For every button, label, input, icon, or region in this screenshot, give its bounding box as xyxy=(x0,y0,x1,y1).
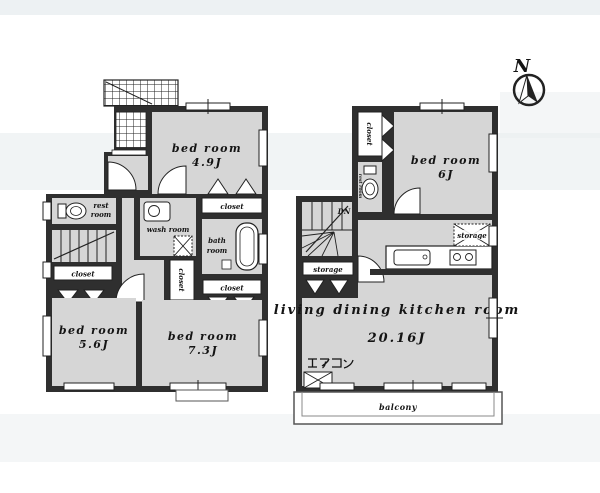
room-washroom: wash room xyxy=(140,198,196,256)
kitchen-counter xyxy=(370,246,492,275)
washing-machine-icon xyxy=(174,236,192,256)
bedroom-73-name: bed room xyxy=(168,330,238,343)
svg-text:closet: closet xyxy=(365,122,374,146)
svg-text:closet: closet xyxy=(220,284,244,293)
room-bedroom-6: bed room 6J xyxy=(394,112,492,214)
room-restroom-f2: rest room xyxy=(357,162,382,212)
restroom-label-1: rest xyxy=(93,201,109,210)
svg-text:storage: storage xyxy=(457,231,487,240)
ldk-name: living dining kitchen room xyxy=(274,303,520,318)
ldk-size: 20.16J xyxy=(367,331,427,346)
balcony: balcony xyxy=(294,392,502,424)
bedroom-6-size: 6J xyxy=(438,168,454,181)
bathroom-label-1: bath xyxy=(208,236,226,245)
stove-icon xyxy=(450,250,476,265)
bedroom-49-name: bed room xyxy=(172,142,242,155)
room-restroom-f1: rest room xyxy=(52,198,116,224)
bedroom-6-name: bed room xyxy=(411,154,481,167)
svg-text:storage: storage xyxy=(313,265,343,274)
bedroom-73-size: 7.3J xyxy=(188,344,218,357)
room-bedroom-5-6: bed room 5.6J xyxy=(52,298,136,386)
toilet-icon xyxy=(58,203,86,219)
restroom-f2-label: rest room xyxy=(357,174,363,199)
kitchen-sink-icon xyxy=(394,250,430,265)
counter-front-wall xyxy=(370,269,492,275)
entrance-tiles xyxy=(116,112,146,148)
bedroom-49-size: 4.9J xyxy=(192,156,222,169)
restroom-label-2: room xyxy=(91,210,111,219)
closet-bedroom49: closet xyxy=(202,198,262,213)
toilet-icon xyxy=(362,166,378,199)
room-bedroom-7-3: bed room 7.3J xyxy=(142,300,262,386)
room-bedroom-4-9: bed room 4.9J xyxy=(152,112,262,194)
washroom-label: wash room xyxy=(147,225,189,234)
stairs-dn-label: DN xyxy=(337,207,351,216)
room-bathroom: bath room xyxy=(202,219,262,274)
bath-faucet-icon xyxy=(222,260,231,269)
stairs-down: DN xyxy=(302,202,352,256)
sink-icon xyxy=(144,202,170,221)
bathtub-icon xyxy=(236,223,258,270)
svg-text:closet: closet xyxy=(177,268,186,292)
terrace-step xyxy=(176,390,228,401)
porch-hatch xyxy=(104,80,178,106)
entrance-step xyxy=(112,150,146,155)
svg-text:closet: closet xyxy=(220,202,244,211)
floorplan-page: bed room 4.9J rest room UP xyxy=(0,0,600,493)
closet-hall-mid: closet xyxy=(170,260,194,300)
bedroom-56-size: 5.6J xyxy=(79,338,109,351)
svg-text:closet: closet xyxy=(71,270,95,279)
balcony-label: balcony xyxy=(379,402,418,412)
bedroom-56-name: bed room xyxy=(59,324,129,337)
storage-kitchen: storage xyxy=(454,224,490,246)
bathroom-label-2: room xyxy=(207,246,227,255)
floor1-plan: bed room 4.9J rest room UP xyxy=(43,80,268,401)
